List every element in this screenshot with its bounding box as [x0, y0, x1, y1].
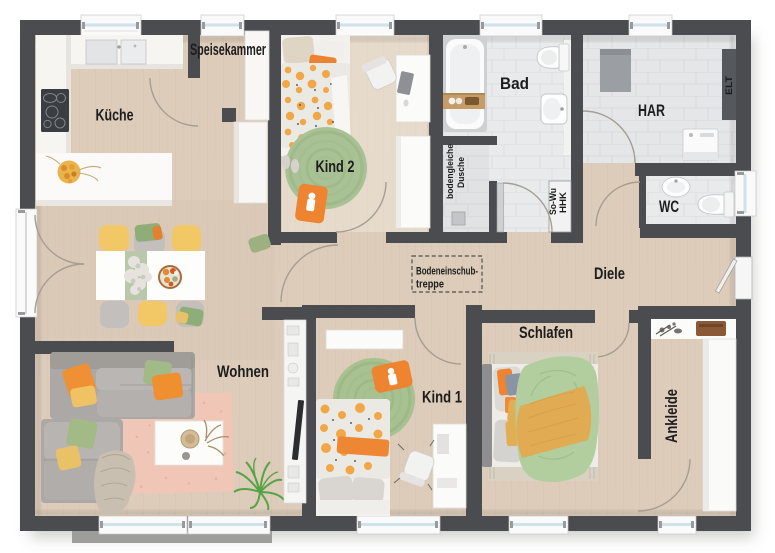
svg-text:Speisekammer: Speisekammer	[190, 40, 266, 59]
svg-text:So-Wu: So-Wu	[548, 188, 558, 215]
svg-text:HHK: HHK	[558, 192, 568, 213]
svg-text:treppe: treppe	[416, 279, 444, 291]
svg-text:Kind 1: Kind 1	[422, 388, 462, 407]
svg-text:Kind 2: Kind 2	[316, 157, 355, 176]
svg-text:Diele: Diele	[594, 264, 625, 283]
svg-text:Bad: Bad	[500, 74, 529, 93]
svg-text:Wohnen: Wohnen	[217, 362, 269, 381]
svg-text:Schlafen: Schlafen	[519, 323, 573, 342]
svg-text:Bodeneinschub-: Bodeneinschub-	[416, 266, 478, 278]
svg-text:ELT: ELT	[724, 76, 735, 95]
svg-text:Küche: Küche	[96, 106, 134, 125]
svg-text:Ankleide: Ankleide	[662, 389, 681, 443]
svg-text:HAR: HAR	[638, 101, 665, 120]
svg-text:bodengleiche: bodengleiche	[445, 144, 455, 199]
svg-text:Dusche: Dusche	[456, 157, 466, 188]
svg-text:WC: WC	[659, 197, 679, 216]
